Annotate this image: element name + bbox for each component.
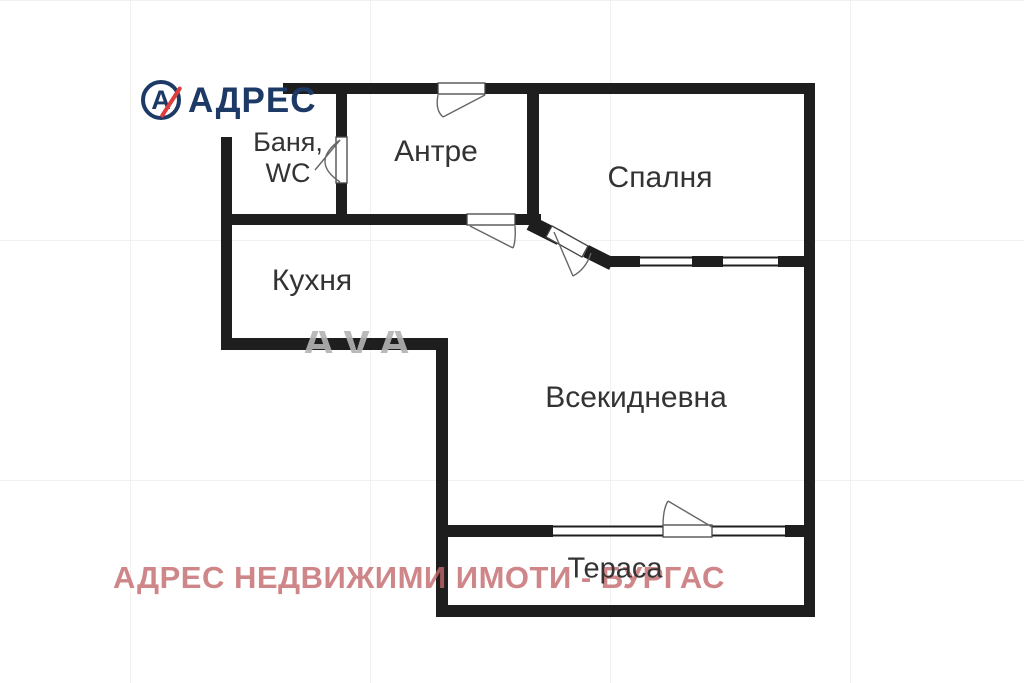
adres-logo: А АДРЕС <box>141 80 316 120</box>
wall-bedroom-bottom-2 <box>692 256 723 267</box>
entry-door-swing <box>437 95 485 117</box>
wall-bedroom-bottom-3 <box>778 256 815 267</box>
floorplan-canvas: АVА Баня, WCАнтреСпалняКухняВсекидневнаТ… <box>0 0 1024 683</box>
logo-brand-text: АДРЕС <box>188 83 316 118</box>
terrace-door <box>663 525 712 537</box>
watermark-fragment: АVА <box>302 315 417 367</box>
agency-watermark-text: АДРЕС НЕДВИЖИМИ ИМОТИ - БУРГАС <box>113 560 725 596</box>
wall-hall-right-wall <box>527 83 539 222</box>
wall-terrace-divider-left <box>436 525 553 537</box>
terrace-door-swing <box>663 501 712 527</box>
wall-left-wall <box>221 137 232 349</box>
adres-logo-icon: А <box>141 80 181 120</box>
wall-hall-bottom-left <box>221 214 467 225</box>
hall-door <box>467 214 515 225</box>
wall-bath-divider-upper <box>336 83 347 137</box>
wall-terrace-divider-right <box>785 525 815 537</box>
wall-terrace-bottom <box>436 605 815 617</box>
entry-door <box>438 83 485 94</box>
hall-door-swing <box>470 226 515 248</box>
